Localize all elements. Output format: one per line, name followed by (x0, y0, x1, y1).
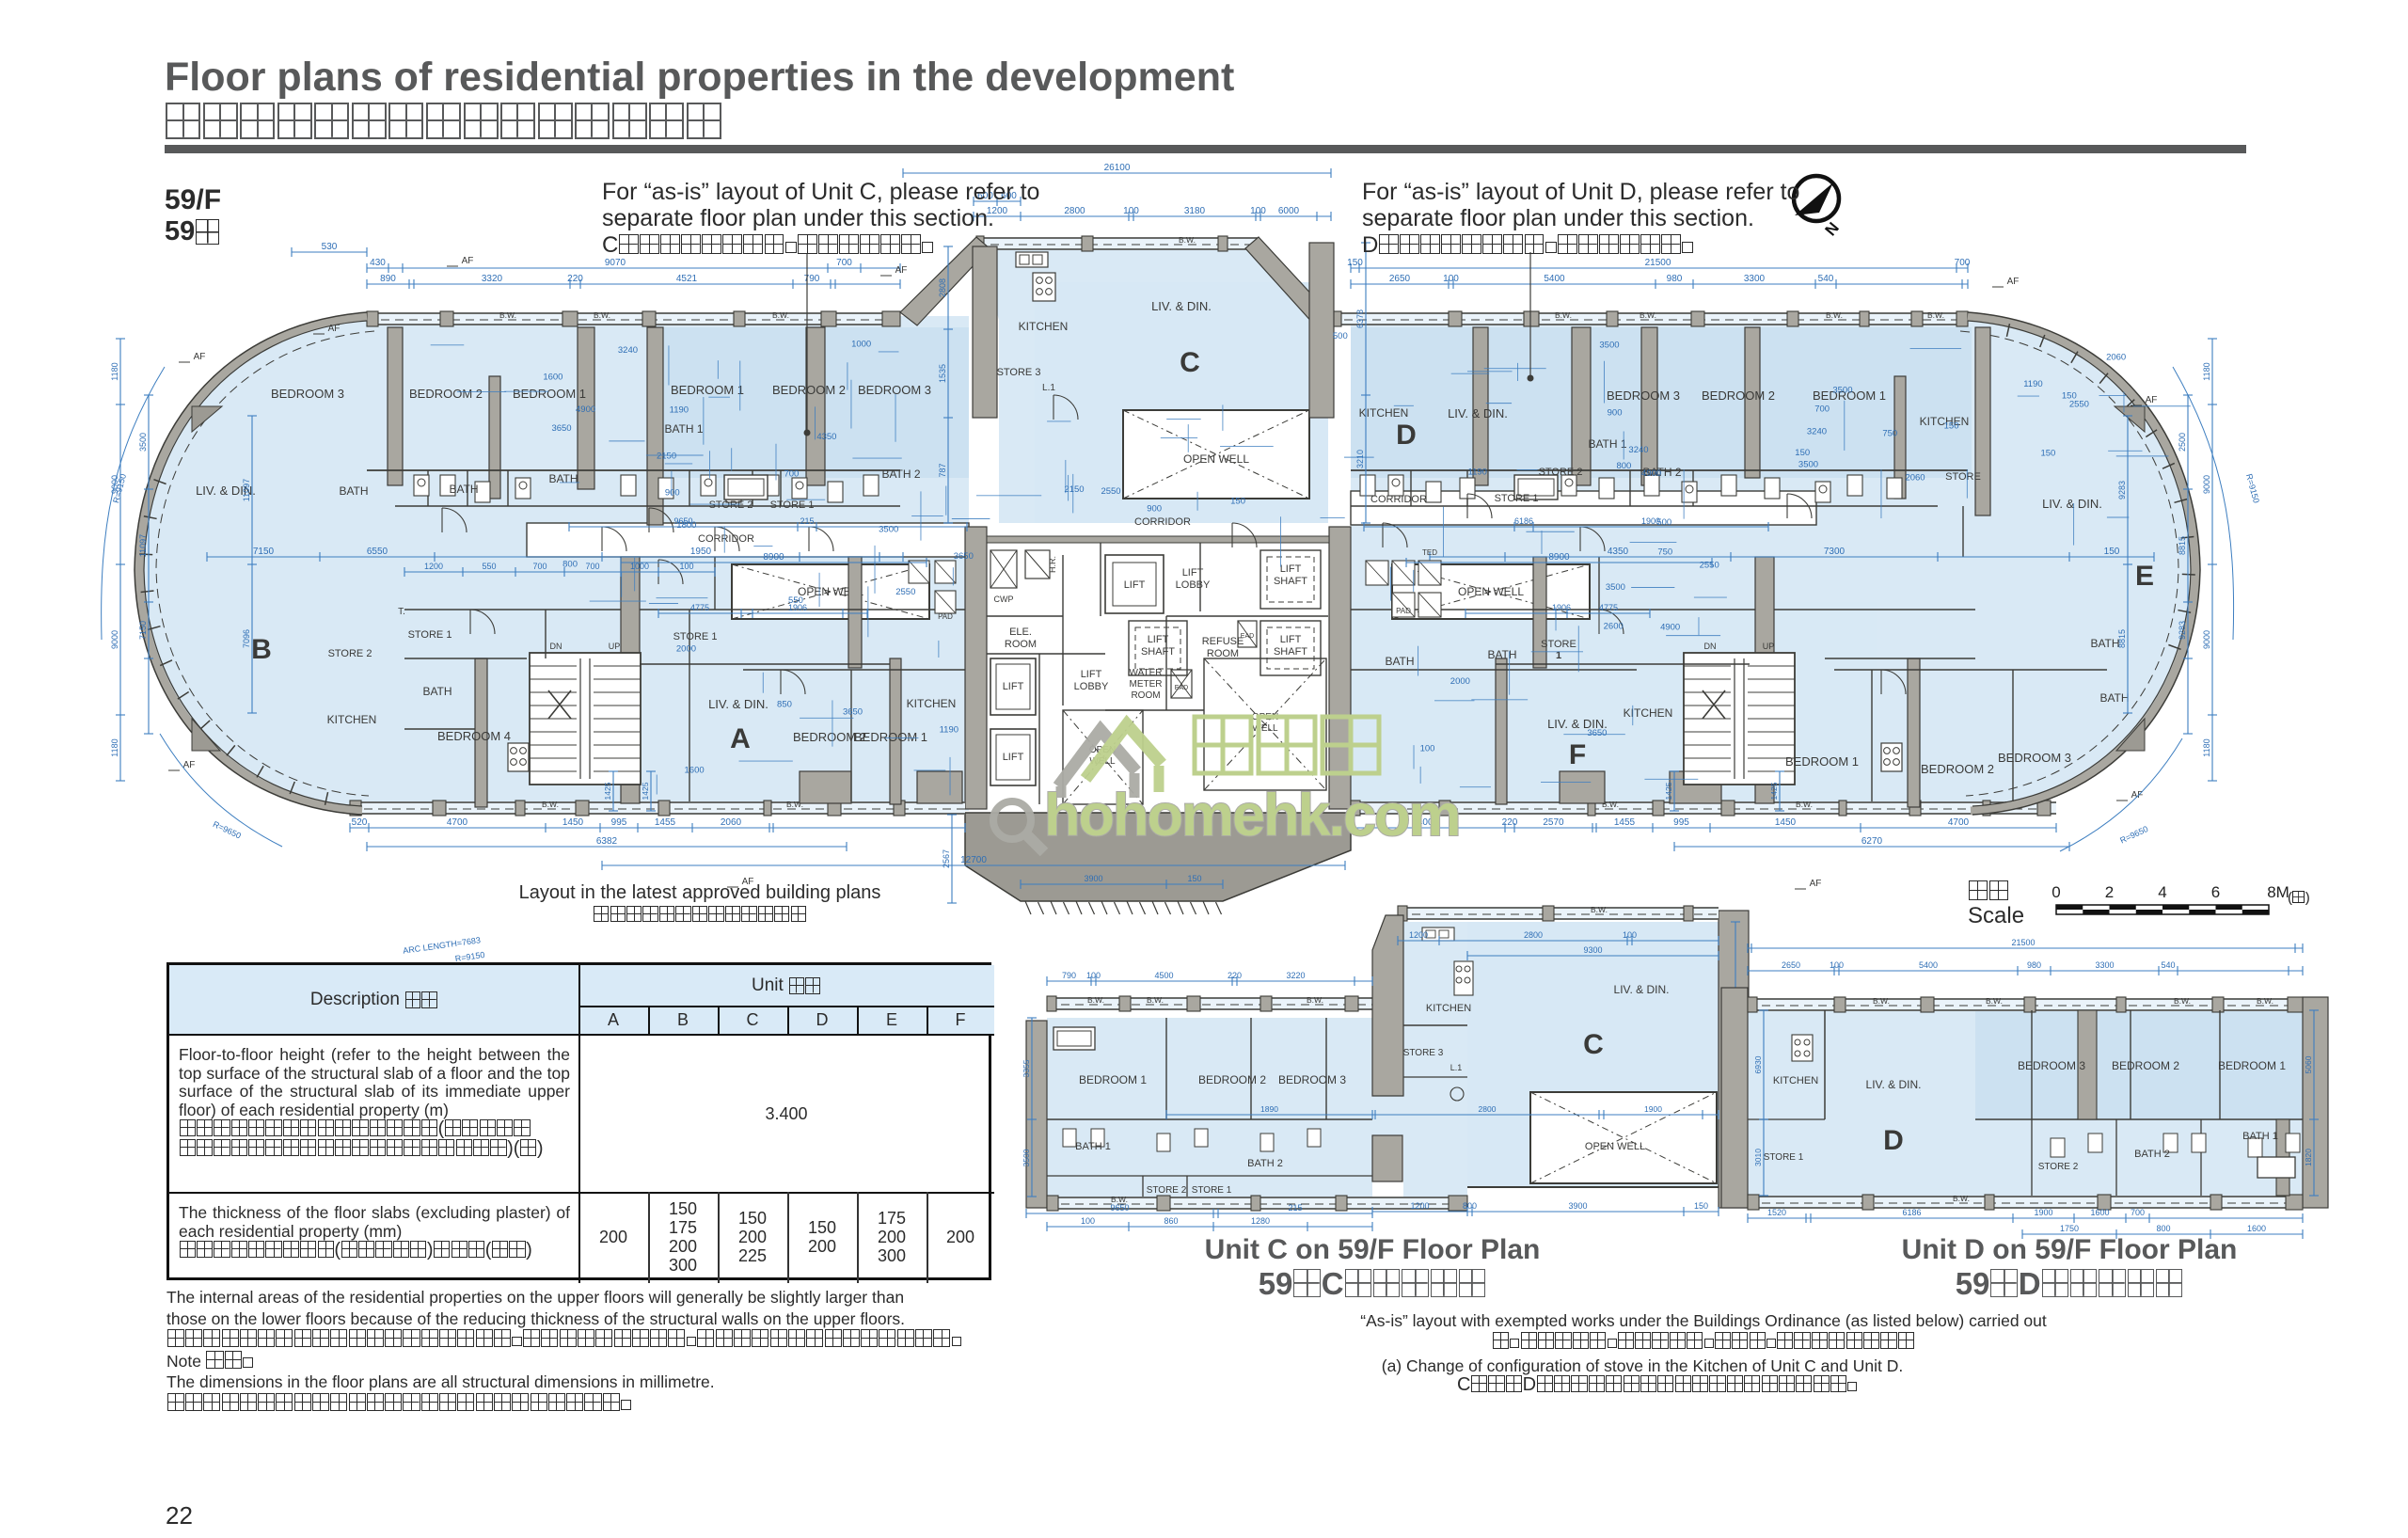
svg-text:2000: 2000 (676, 643, 696, 654)
svg-text:BATH: BATH (339, 484, 368, 498)
svg-text:100: 100 (1420, 743, 1435, 753)
svg-text:6186: 6186 (1902, 1208, 1921, 1217)
svg-text:220: 220 (1502, 817, 1518, 828)
svg-text:890: 890 (380, 274, 396, 284)
svg-text:1455: 1455 (1614, 817, 1636, 828)
svg-text:BATH: BATH (548, 472, 578, 485)
svg-text:LIFT: LIFT (1280, 634, 1302, 645)
svg-text:1190: 1190 (670, 404, 689, 415)
svg-text:4900: 4900 (1641, 468, 1661, 479)
svg-text:3500: 3500 (1798, 460, 1818, 470)
svg-text:AF: AF (895, 265, 908, 276)
svg-text:9000: 9000 (2202, 630, 2211, 649)
svg-text:3180: 3180 (1184, 206, 1206, 216)
svg-text:100: 100 (1830, 960, 1844, 970)
svg-text:150: 150 (2062, 391, 2077, 402)
svg-text:3900: 3900 (1568, 1201, 1587, 1211)
svg-text:4700: 4700 (1948, 817, 1970, 828)
svg-text:21500: 21500 (1645, 258, 1671, 268)
svg-text:3500: 3500 (138, 433, 148, 452)
svg-text:LIV. & DIN.: LIV. & DIN. (2042, 497, 2102, 511)
svg-text:BEDROOM 1: BEDROOM 1 (1785, 754, 1859, 769)
svg-text:B.W.: B.W. (594, 310, 610, 320)
svg-text:BEDROOM 4: BEDROOM 4 (437, 729, 511, 743)
svg-text:100: 100 (1081, 1216, 1095, 1226)
svg-text:3900: 3900 (1084, 874, 1102, 883)
svg-text:OPEN WELL: OPEN WELL (1585, 1141, 1645, 1152)
svg-text:3220: 3220 (1286, 971, 1305, 980)
svg-text:AF: AF (328, 324, 341, 334)
svg-text:1200: 1200 (1409, 930, 1428, 940)
svg-text:2: 2 (2105, 883, 2114, 901)
svg-text:AF: AF (462, 256, 474, 266)
svg-text:STORE 2: STORE 2 (709, 499, 753, 511)
svg-text:LIFT: LIFT (1124, 579, 1146, 591)
svg-text:KITCHEN: KITCHEN (1624, 706, 1673, 720)
svg-text:1600: 1600 (2090, 1208, 2109, 1217)
svg-text:980: 980 (2027, 960, 2041, 970)
svg-text:E: E (2135, 561, 2154, 592)
svg-text:EAD: EAD (1175, 685, 1188, 691)
svg-text:2550: 2550 (1101, 486, 1120, 497)
svg-text:CWP: CWP (994, 595, 1014, 604)
svg-text:9283: 9283 (2178, 621, 2187, 640)
svg-text:700: 700 (2131, 1208, 2145, 1217)
svg-text:KITCHEN: KITCHEN (1773, 1075, 1818, 1086)
svg-text:700: 700 (784, 468, 799, 479)
svg-text:995: 995 (611, 817, 627, 828)
svg-text:BEDROOM 3: BEDROOM 3 (1607, 388, 1680, 403)
svg-text:L.1: L.1 (1042, 383, 1055, 393)
svg-text:B.W.: B.W. (2257, 996, 2273, 1006)
svg-text:3650: 3650 (551, 423, 571, 434)
svg-text:6550: 6550 (367, 547, 388, 557)
svg-text:1455: 1455 (655, 817, 676, 828)
svg-text:150: 150 (2104, 547, 2120, 557)
svg-text:100: 100 (1250, 206, 1266, 216)
svg-text:9000: 9000 (110, 630, 119, 649)
svg-text:B.W.: B.W. (1953, 1194, 1970, 1203)
svg-text:1900: 1900 (2034, 1208, 2052, 1217)
svg-text:TED: TED (1422, 548, 1437, 557)
svg-text:9650: 9650 (1110, 1203, 1129, 1213)
svg-text:1950: 1950 (690, 547, 712, 557)
svg-text:STORE 3: STORE 3 (1403, 1048, 1444, 1058)
svg-text:STORE 2: STORE 2 (2038, 1162, 2079, 1172)
svg-text:2060: 2060 (2106, 352, 2126, 362)
svg-text:B.W.: B.W. (542, 800, 559, 809)
svg-text:KITCHEN: KITCHEN (327, 713, 377, 726)
svg-text:L.1: L.1 (1450, 1063, 1463, 1072)
svg-text:WATER: WATER (1130, 668, 1163, 678)
svg-text:850: 850 (777, 700, 792, 710)
svg-text:BATH 1: BATH 1 (2242, 1131, 2278, 1142)
svg-text:7150: 7150 (253, 547, 275, 557)
svg-text:9300: 9300 (1583, 945, 1602, 955)
svg-text:B.W.: B.W. (1796, 800, 1813, 809)
svg-text:2150: 2150 (1064, 484, 1084, 495)
svg-text:900: 900 (1608, 408, 1623, 419)
svg-text:800: 800 (2156, 1224, 2170, 1233)
svg-text:2500: 2500 (2178, 433, 2187, 452)
svg-text:2567: 2567 (942, 849, 951, 868)
svg-text:1600: 1600 (685, 766, 705, 776)
svg-text:6186: 6186 (1514, 516, 1533, 526)
svg-text:B.W.: B.W. (1873, 996, 1890, 1006)
svg-text:B: B (251, 634, 272, 665)
svg-text:1425: 1425 (641, 782, 650, 800)
svg-text:1750: 1750 (2060, 1224, 2079, 1233)
svg-text:3650: 3650 (843, 706, 863, 717)
svg-text:B.W.: B.W. (1087, 995, 1104, 1005)
svg-text:OPEN WELL: OPEN WELL (1458, 585, 1524, 598)
svg-text:3500: 3500 (1832, 386, 1852, 396)
svg-text:700: 700 (836, 258, 852, 268)
svg-text:1280: 1280 (1251, 1216, 1270, 1226)
svg-text:11097: 11097 (242, 479, 251, 501)
svg-text:100: 100 (1623, 930, 1637, 940)
svg-text:BATH: BATH (449, 483, 478, 496)
svg-text:2808: 2808 (938, 278, 947, 297)
svg-text:PAD: PAD (938, 612, 953, 621)
svg-text:8900: 8900 (1548, 552, 1570, 563)
svg-text:1180: 1180 (2202, 362, 2211, 380)
svg-text:BATH: BATH (2099, 691, 2129, 705)
svg-text:BEDROOM 1: BEDROOM 1 (854, 730, 927, 744)
svg-text:530: 530 (322, 242, 338, 252)
svg-text:BEDROOM 1: BEDROOM 1 (671, 383, 744, 397)
svg-text:B.W.: B.W. (772, 310, 789, 320)
svg-text:3210: 3210 (1355, 450, 1365, 468)
svg-text:5400: 5400 (1544, 274, 1565, 284)
svg-text:LIFT: LIFT (1003, 752, 1024, 763)
svg-text:2800: 2800 (1524, 930, 1543, 940)
svg-text:6378: 6378 (1355, 309, 1365, 328)
svg-text:KITCHEN: KITCHEN (1359, 406, 1409, 420)
svg-text:AF: AF (194, 352, 206, 362)
svg-text:6000: 6000 (1278, 206, 1300, 216)
svg-text:4775: 4775 (1599, 603, 1618, 612)
svg-text:BEDROOM 3: BEDROOM 3 (1278, 1073, 1346, 1086)
svg-text:LIV. & DIN.: LIV. & DIN. (1151, 299, 1212, 313)
svg-text:3500: 3500 (1599, 340, 1619, 350)
svg-text:9000: 9000 (2202, 475, 2211, 494)
svg-text:150: 150 (1230, 497, 1245, 507)
svg-text:CORRIDOR: CORRIDOR (1370, 494, 1427, 505)
svg-text:7300: 7300 (1824, 547, 1846, 557)
svg-text:220: 220 (1228, 971, 1242, 980)
svg-text:3355: 3355 (1022, 1059, 1031, 1077)
svg-text:790: 790 (1062, 971, 1076, 980)
svg-text:100: 100 (1443, 274, 1459, 284)
svg-text:UP: UP (609, 642, 621, 651)
svg-text:150: 150 (1795, 448, 1810, 458)
svg-text:KITCHEN: KITCHEN (1019, 320, 1069, 333)
svg-text:KITCHEN: KITCHEN (1426, 1003, 1471, 1014)
svg-text:ROOM: ROOM (1207, 648, 1239, 659)
svg-text:1450: 1450 (1775, 817, 1797, 828)
svg-text:1000: 1000 (851, 340, 871, 350)
svg-text:2800: 2800 (1064, 206, 1085, 216)
svg-text:STORE 2: STORE 2 (1147, 1185, 1187, 1196)
svg-text:D: D (1396, 420, 1417, 451)
svg-text:1450: 1450 (562, 817, 584, 828)
svg-text:900: 900 (1147, 504, 1162, 515)
svg-text:1180: 1180 (2202, 738, 2211, 756)
svg-text:7096: 7096 (242, 629, 251, 648)
svg-text:BATH: BATH (422, 685, 451, 698)
svg-text:1890: 1890 (1260, 1104, 1278, 1114)
svg-text:3500: 3500 (1606, 582, 1625, 593)
svg-text:METER: METER (1130, 679, 1163, 690)
svg-text:STORE: STORE (1945, 471, 1981, 483)
svg-text:B.W.: B.W. (1640, 310, 1656, 320)
svg-text:1820: 1820 (2304, 1149, 2313, 1166)
svg-text:1425: 1425 (1664, 782, 1673, 800)
svg-text:1190: 1190 (940, 724, 958, 735)
svg-text:0: 0 (2052, 883, 2060, 901)
svg-text:540: 540 (2161, 960, 2175, 970)
svg-text:H.R.: H.R. (1048, 556, 1057, 573)
svg-text:3300: 3300 (1744, 274, 1766, 284)
svg-text:700: 700 (1955, 258, 1971, 268)
svg-text:150: 150 (1187, 874, 1201, 883)
svg-text:2650: 2650 (1389, 274, 1411, 284)
svg-text:D: D (1883, 1125, 1904, 1156)
svg-text:215: 215 (1288, 1203, 1302, 1213)
svg-text:11097: 11097 (138, 534, 148, 557)
svg-text:1600: 1600 (2247, 1224, 2266, 1233)
svg-text:BATH: BATH (2090, 637, 2119, 650)
svg-text:BATH 1: BATH 1 (1588, 437, 1626, 451)
svg-text:ROOM: ROOM (1005, 639, 1037, 650)
svg-text:R=9650: R=9650 (2118, 824, 2149, 845)
svg-text:2600: 2600 (1604, 622, 1624, 632)
svg-text:STORE 3: STORE 3 (997, 367, 1041, 378)
svg-text:4775: 4775 (690, 603, 709, 612)
svg-text:8M: 8M (2267, 883, 2289, 901)
svg-text:1906: 1906 (1552, 603, 1571, 612)
svg-text:SHAFT: SHAFT (1141, 646, 1175, 658)
svg-text:BEDROOM 2: BEDROOM 2 (409, 387, 483, 401)
svg-text:BEDROOM 2: BEDROOM 2 (772, 383, 846, 397)
svg-text:900: 900 (665, 488, 680, 499)
svg-text:AF: AF (2007, 277, 2020, 287)
svg-text:LIV. & DIN.: LIV. & DIN. (708, 697, 768, 711)
svg-text:CORRIDOR: CORRIDOR (1134, 516, 1191, 528)
svg-text:B.W.: B.W. (1555, 310, 1572, 320)
svg-text:UP: UP (1763, 642, 1775, 651)
svg-text:N: N (1822, 219, 1843, 240)
svg-text:BATH 1: BATH 1 (1075, 1141, 1111, 1152)
svg-text:LIV. & DIN.: LIV. & DIN. (1866, 1078, 1922, 1091)
svg-text:B.W.: B.W. (1179, 235, 1196, 245)
svg-text:STORE 1: STORE 1 (1192, 1185, 1232, 1196)
svg-text:700: 700 (585, 562, 599, 571)
svg-text:CORRIDOR: CORRIDOR (698, 533, 754, 545)
svg-text:3320: 3320 (482, 274, 503, 284)
svg-text:1200: 1200 (424, 562, 443, 571)
svg-text:STORE 1: STORE 1 (408, 629, 452, 641)
svg-text:F: F (1569, 739, 1586, 770)
svg-text:2060: 2060 (1905, 473, 1925, 484)
svg-text:SHAFT: SHAFT (1274, 576, 1307, 587)
svg-text:BATH: BATH (1385, 655, 1414, 668)
svg-text:12700: 12700 (960, 855, 987, 865)
svg-text:3500: 3500 (1022, 1149, 1031, 1166)
svg-text:BEDROOM 1: BEDROOM 1 (1079, 1073, 1147, 1086)
svg-text:1520: 1520 (1767, 1208, 1786, 1217)
svg-text:1425: 1425 (603, 782, 612, 800)
svg-text:BATH 2: BATH 2 (1247, 1158, 1283, 1169)
svg-text:1190: 1190 (2023, 379, 2042, 389)
svg-text:4500: 4500 (1154, 971, 1173, 980)
svg-text:800: 800 (1463, 1201, 1477, 1211)
svg-text:LIV. & DIN.: LIV. & DIN. (1448, 406, 1508, 420)
svg-text:750: 750 (1657, 547, 1672, 557)
svg-text:6382: 6382 (596, 836, 618, 847)
svg-text:STORE 1: STORE 1 (1495, 493, 1539, 504)
svg-text:150: 150 (1694, 1201, 1708, 1211)
svg-text:220: 220 (567, 274, 583, 284)
svg-text:4350: 4350 (1608, 547, 1629, 557)
svg-text:6: 6 (2211, 883, 2220, 901)
svg-text:1800: 1800 (676, 520, 696, 531)
svg-text:BEDROOM 2: BEDROOM 2 (1198, 1073, 1266, 1086)
svg-text:B.W.: B.W. (1307, 995, 1323, 1005)
svg-text:BEDROOM 1: BEDROOM 1 (513, 387, 586, 401)
svg-text:BATH 2: BATH 2 (881, 468, 920, 481)
svg-text:LIFT: LIFT (1148, 634, 1169, 645)
svg-text:540: 540 (1818, 274, 1834, 284)
svg-text:LIFT: LIFT (1081, 669, 1102, 680)
svg-text:STORE 2: STORE 2 (1539, 467, 1583, 478)
svg-text:LIV. & DIN.: LIV. & DIN. (1614, 983, 1670, 996)
svg-text:T.: T. (398, 607, 405, 617)
svg-text:1600: 1600 (543, 373, 562, 383)
svg-text:BEDROOM 3: BEDROOM 3 (1998, 751, 2071, 765)
svg-text:LOBBY: LOBBY (1074, 681, 1109, 692)
svg-text:B.W.: B.W. (1986, 996, 2003, 1006)
svg-text:AF: AF (1810, 879, 1822, 889)
svg-text:700: 700 (532, 562, 547, 571)
svg-text:430: 430 (370, 258, 386, 268)
svg-text:2800: 2800 (1479, 1104, 1497, 1114)
svg-text:3010: 3010 (1753, 1149, 1763, 1166)
svg-text:1180: 1180 (110, 738, 119, 756)
svg-text:STORE 2: STORE 2 (328, 648, 372, 659)
svg-text:6930: 6930 (1753, 1055, 1763, 1073)
svg-text:B.W.: B.W. (1147, 995, 1164, 1005)
svg-text:LIFT: LIFT (1003, 681, 1024, 692)
svg-text:8815: 8815 (2117, 629, 2127, 648)
svg-text:B.W.: B.W. (2174, 996, 2191, 1006)
svg-text:DN: DN (550, 642, 562, 651)
svg-text:26100: 26100 (1104, 163, 1131, 173)
svg-text:4900: 4900 (576, 404, 595, 415)
svg-text:4900: 4900 (1660, 622, 1680, 632)
svg-text:ROOM: ROOM (1131, 690, 1160, 701)
svg-text:DN: DN (1704, 642, 1717, 651)
svg-text:4521: 4521 (676, 274, 698, 284)
svg-text:100: 100 (1086, 971, 1101, 980)
svg-text:980: 980 (1667, 274, 1683, 284)
svg-text:BATH 1: BATH 1 (664, 422, 703, 436)
svg-text:3650: 3650 (954, 551, 974, 562)
svg-text:3300: 3300 (2095, 960, 2114, 970)
svg-text:BEDROOM 2: BEDROOM 2 (1921, 762, 1994, 776)
svg-text:520: 520 (352, 817, 368, 828)
svg-text:PAD: PAD (1396, 607, 1411, 615)
svg-text:750: 750 (1882, 429, 1897, 439)
svg-text:3240: 3240 (618, 345, 638, 356)
svg-text:8815: 8815 (2178, 536, 2187, 555)
svg-text:3240: 3240 (1807, 426, 1827, 436)
svg-text:9070: 9070 (605, 258, 626, 268)
svg-text:B.W.: B.W. (1826, 310, 1843, 320)
svg-text:OPEN WELL: OPEN WELL (1183, 452, 1249, 466)
svg-text:800: 800 (1616, 461, 1631, 471)
svg-text:STORE 1: STORE 1 (1764, 1152, 1804, 1163)
svg-text:AF: AF (2146, 395, 2158, 405)
svg-text:21500: 21500 (2011, 938, 2035, 947)
svg-text:550: 550 (788, 595, 803, 606)
svg-text:ELE.: ELE. (1009, 626, 1032, 638)
svg-text:BEDROOM 3: BEDROOM 3 (2018, 1059, 2085, 1072)
svg-text:R=9650: R=9650 (212, 819, 243, 840)
svg-text:2150: 2150 (657, 452, 676, 462)
svg-text:5400: 5400 (1919, 960, 1938, 970)
svg-text:6270: 6270 (1861, 836, 1883, 847)
svg-text:EAD: EAD (1241, 633, 1254, 640)
svg-text:STORE 1: STORE 1 (673, 631, 718, 642)
svg-text:790: 790 (804, 274, 820, 284)
svg-text:C: C (1583, 1029, 1604, 1060)
svg-text:1425: 1425 (1769, 782, 1779, 800)
svg-text:KITCHEN: KITCHEN (907, 697, 957, 710)
svg-text:1190: 1190 (1467, 467, 1486, 477)
svg-text:A: A (730, 723, 751, 754)
svg-text:2550: 2550 (1700, 561, 1719, 571)
svg-text:995: 995 (1673, 817, 1689, 828)
svg-text:700: 700 (1814, 404, 1830, 414)
svg-text:LIFT: LIFT (1280, 563, 1302, 575)
svg-text:4700: 4700 (447, 817, 468, 828)
svg-text:BEDROOM 2: BEDROOM 2 (1702, 388, 1775, 403)
svg-text:3240: 3240 (1628, 445, 1648, 455)
svg-text:BEDROOM 3: BEDROOM 3 (858, 383, 931, 397)
svg-text:5060: 5060 (2304, 1055, 2313, 1073)
svg-text:B.W.: B.W. (1591, 905, 1608, 914)
svg-text:500: 500 (1333, 331, 1348, 341)
svg-text:BATH: BATH (1487, 648, 1516, 661)
svg-text:C: C (1180, 347, 1200, 378)
svg-text:STORE: STORE (1541, 639, 1576, 650)
svg-text:500: 500 (1656, 517, 1671, 528)
svg-text:2550: 2550 (895, 587, 915, 597)
svg-text:2570: 2570 (1543, 817, 1564, 828)
svg-text:BEDROOM 1: BEDROOM 1 (2218, 1059, 2286, 1072)
svg-text:8900: 8900 (763, 552, 784, 563)
svg-text:150: 150 (1944, 421, 1959, 432)
svg-text:100: 100 (1123, 206, 1139, 216)
svg-text:B.W.: B.W. (1927, 310, 1944, 320)
svg-text:215: 215 (800, 516, 814, 526)
svg-text:BEDROOM 3: BEDROOM 3 (271, 387, 344, 401)
svg-text:BEDROOM 2: BEDROOM 2 (2112, 1059, 2179, 1072)
svg-text:150: 150 (2040, 449, 2055, 459)
svg-text:800: 800 (562, 559, 578, 569)
